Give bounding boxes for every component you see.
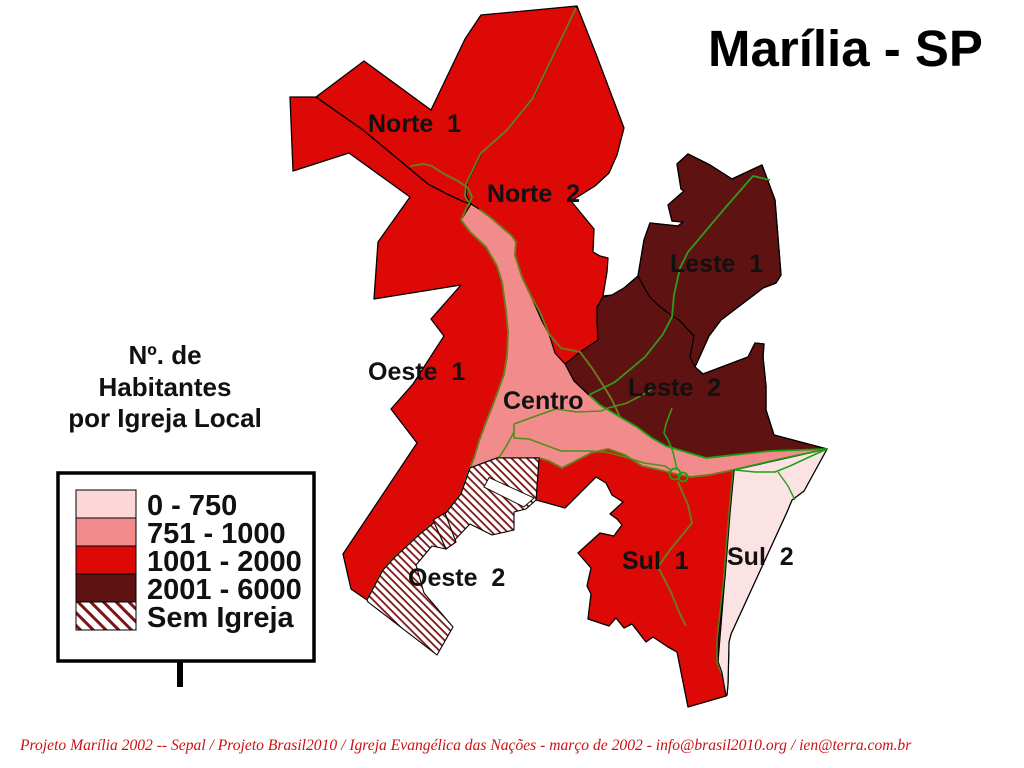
- svg-text:Marília - SP: Marília - SP: [708, 20, 983, 77]
- svg-text:Centro: Centro: [503, 387, 584, 415]
- svg-text:Norte 1: Norte 1: [368, 110, 461, 138]
- svg-text:Projeto Marília 2002 -- Sepal: Projeto Marília 2002 -- Sepal / Projeto …: [19, 737, 912, 754]
- svg-text:Nº. de: Nº. de: [128, 340, 201, 370]
- svg-text:Sul 1: Sul 1: [622, 547, 689, 575]
- svg-text:Leste 1: Leste 1: [670, 250, 763, 278]
- svg-text:por Igreja Local: por Igreja Local: [68, 403, 262, 433]
- svg-text:Leste 2: Leste 2: [628, 374, 721, 402]
- svg-text:Oeste 1: Oeste 1: [368, 358, 465, 386]
- svg-text:Sul 2: Sul 2: [727, 543, 794, 571]
- svg-text:Oeste 2: Oeste 2: [408, 564, 505, 592]
- svg-text:Sem Igreja: Sem Igreja: [147, 602, 295, 634]
- svg-text:Norte 2: Norte 2: [487, 180, 580, 208]
- svg-text:Habitantes: Habitantes: [99, 372, 232, 402]
